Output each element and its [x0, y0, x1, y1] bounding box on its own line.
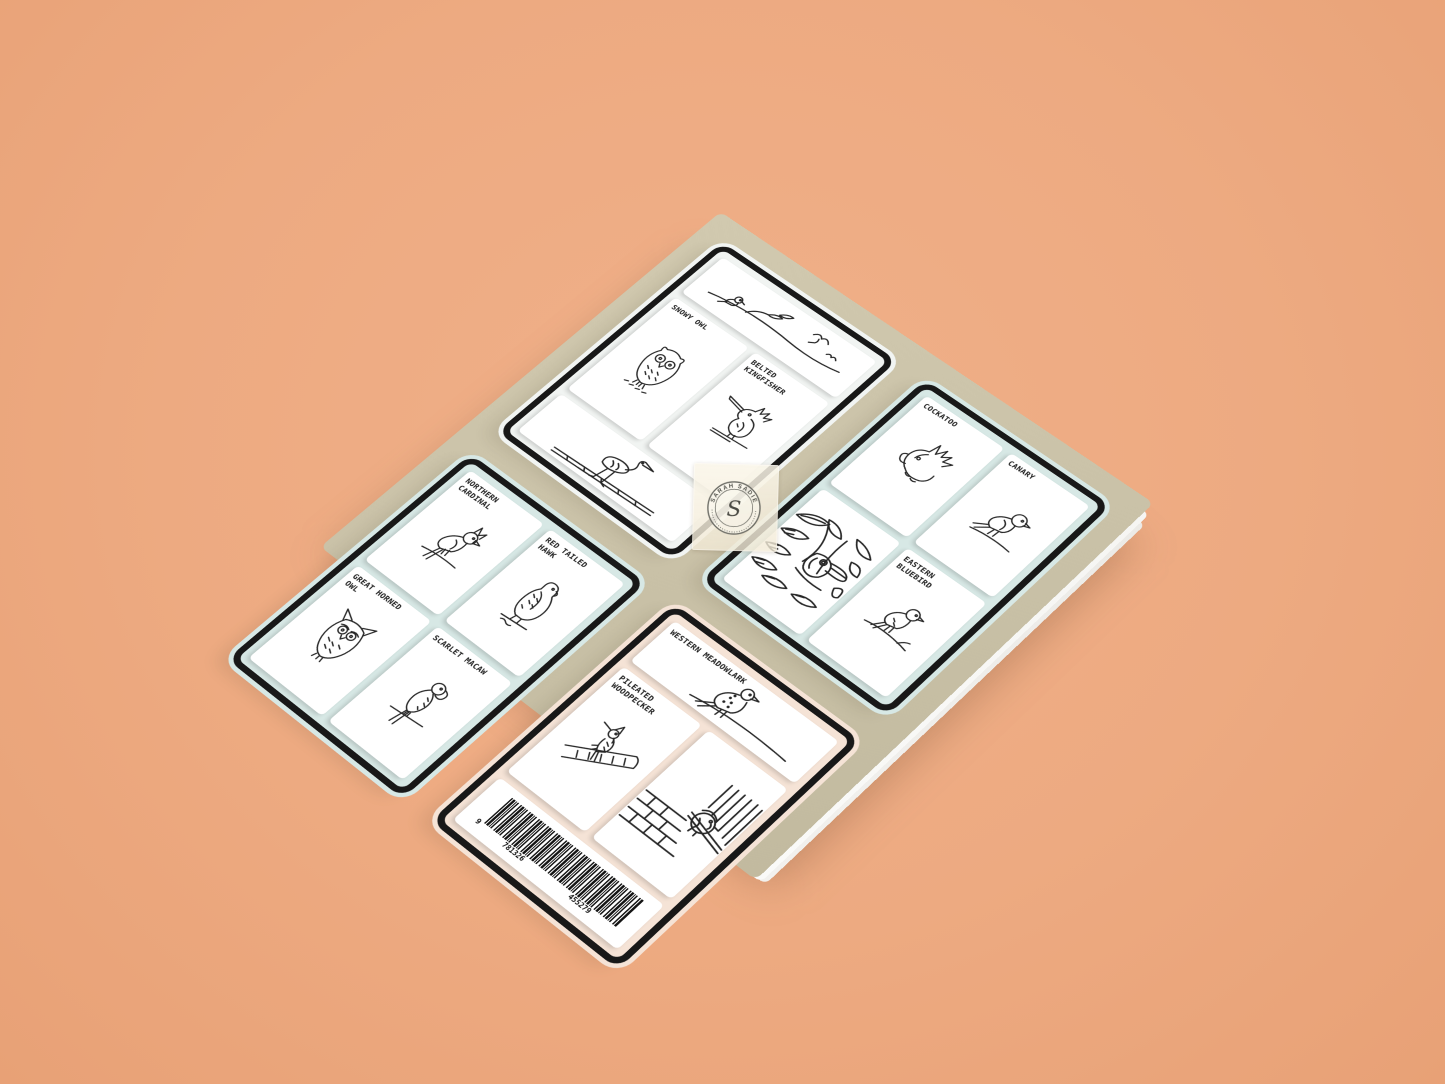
- washi-tape: SARAH SADIE S: [692, 463, 779, 552]
- seal-initial: S: [726, 496, 741, 521]
- brand-seal: SARAH SADIE S: [699, 473, 769, 543]
- page-background: SNOWY OWL BELTED KINGFISHER COCKATOO: [0, 0, 1445, 1084]
